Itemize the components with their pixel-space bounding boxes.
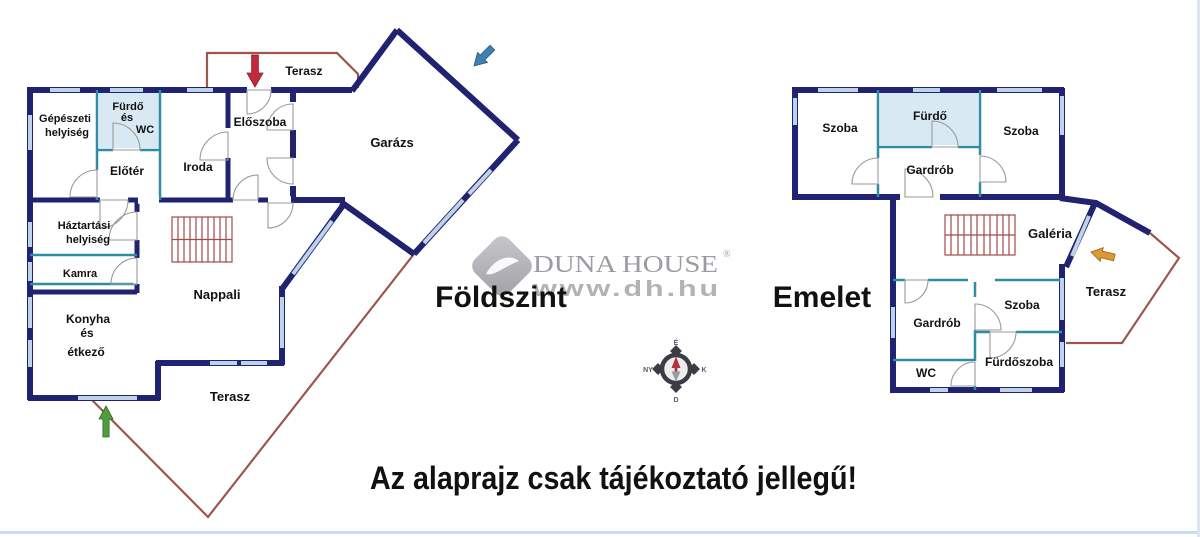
room-label-szoba-right: Szoba — [1003, 124, 1039, 138]
compass-label-east: K — [701, 367, 706, 374]
room-label-nappali: Nappali — [194, 287, 241, 302]
room-label-terasz-upper: Terasz — [1086, 284, 1127, 299]
room-label-konyha-line2: és — [80, 326, 94, 340]
room-label-gepeszeti-line1: Gépészeti — [39, 113, 91, 125]
upper-staircase — [945, 215, 1015, 255]
room-label-konyha-line3: étkező — [67, 345, 104, 359]
compass-label-south: D — [673, 397, 678, 404]
room-label-furdo-upper: Fürdő — [913, 109, 947, 123]
room-label-eloszoba: Előszoba — [234, 115, 287, 129]
room-label-gardrob-upper: Gardrób — [906, 163, 953, 177]
floorplan-image: DUNA HOUSE ® www.dh.hu — [0, 0, 1200, 537]
bottom-edge-strip — [0, 531, 1200, 534]
entrance-arrow-down-icon — [247, 55, 263, 87]
watermark-registered-mark: ® — [723, 249, 731, 260]
room-label-iroda: Iroda — [183, 160, 213, 174]
room-label-konyha-line1: Konyha — [66, 312, 110, 326]
room-label-haztartasi-line1: Háztartási — [58, 220, 111, 232]
floorplan-page: DUNA HOUSE ® www.dh.hu — [0, 0, 1200, 537]
room-label-terasz-bottom: Terasz — [210, 389, 251, 404]
disclaimer-text: Az alaprajz csak tájékoztató jellegű! — [370, 460, 857, 496]
garage-entrance-arrow-icon — [469, 43, 497, 71]
room-label-kamra: Kamra — [63, 268, 98, 280]
room-label-gardrob-lower: Gardrób — [913, 316, 960, 330]
ground-terrace-bottom-outline — [92, 254, 414, 517]
ground-staircase — [172, 217, 232, 262]
compass-rose: É D NY K — [643, 338, 706, 404]
compass-label-west: NY — [643, 367, 653, 374]
ground-terrace-top-outline — [207, 53, 358, 88]
room-label-terasz-top: Terasz — [285, 64, 322, 78]
room-label-garazs: Garázs — [370, 135, 413, 150]
compass-label-north: É — [674, 338, 679, 347]
room-label-haztartasi-line2: helyiség — [66, 234, 110, 246]
room-label-furdo-line2: és — [121, 112, 133, 124]
ground-floor-title: Földszint — [435, 281, 567, 314]
room-label-szoba-mid: Szoba — [1004, 298, 1040, 312]
room-label-galeria: Galéria — [1028, 226, 1073, 241]
room-label-wc: WC — [916, 366, 936, 380]
room-label-szoba-left: Szoba — [822, 121, 858, 135]
room-label-eloter: Előtér — [110, 164, 144, 178]
room-label-gepeszeti-line2: helyiség — [45, 127, 89, 139]
terrace-entrance-arrow-icon — [1089, 245, 1116, 264]
watermark-brand-text: DUNA HOUSE — [533, 252, 718, 278]
room-label-furdo-line3: WC — [136, 124, 154, 136]
compass-needle-stem — [675, 368, 678, 372]
upper-floor-title: Emelet — [773, 281, 871, 314]
room-label-furdoszoba: Fürdőszoba — [985, 355, 1053, 369]
